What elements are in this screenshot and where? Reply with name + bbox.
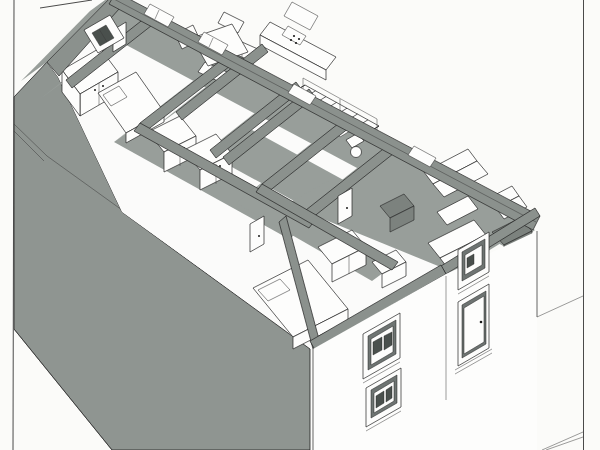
cutaway-floor-plan-drawing [0,0,600,450]
toilet [351,147,362,158]
scanned-drawing-page [0,0,600,450]
door-handle [480,321,483,324]
